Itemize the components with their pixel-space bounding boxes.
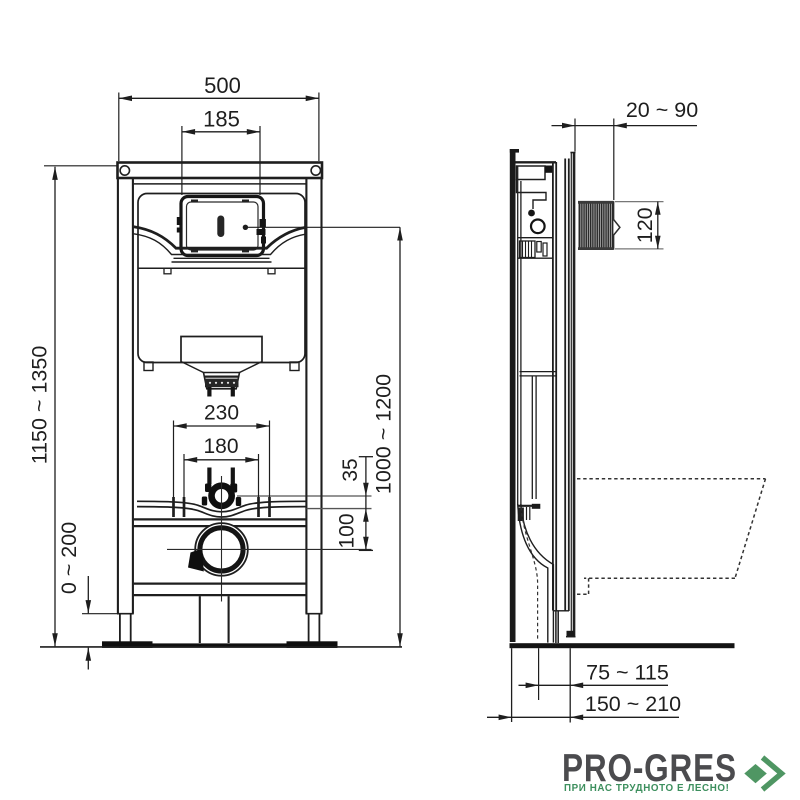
svg-text:1150 ~ 1350: 1150 ~ 1350 <box>28 346 52 465</box>
svg-text:1000 ~ 1200: 1000 ~ 1200 <box>372 374 396 494</box>
svg-text:150 ~ 210: 150 ~ 210 <box>585 692 681 716</box>
svg-text:185: 185 <box>203 107 240 132</box>
svg-text:20 ~ 90: 20 ~ 90 <box>626 98 698 122</box>
svg-text:ПРИ НАС ТРУДНОТО Е ЛЕСНО!: ПРИ НАС ТРУДНОТО Е ЛЕСНО! <box>564 783 729 794</box>
svg-text:500: 500 <box>204 73 241 98</box>
svg-text:120: 120 <box>633 207 657 243</box>
svg-text:75 ~ 115: 75 ~ 115 <box>586 661 669 685</box>
svg-text:0 ~ 200: 0 ~ 200 <box>57 522 81 594</box>
svg-text:100: 100 <box>336 513 359 548</box>
svg-text:35: 35 <box>339 458 362 481</box>
svg-text:230: 230 <box>204 401 239 424</box>
svg-text:180: 180 <box>203 435 238 458</box>
